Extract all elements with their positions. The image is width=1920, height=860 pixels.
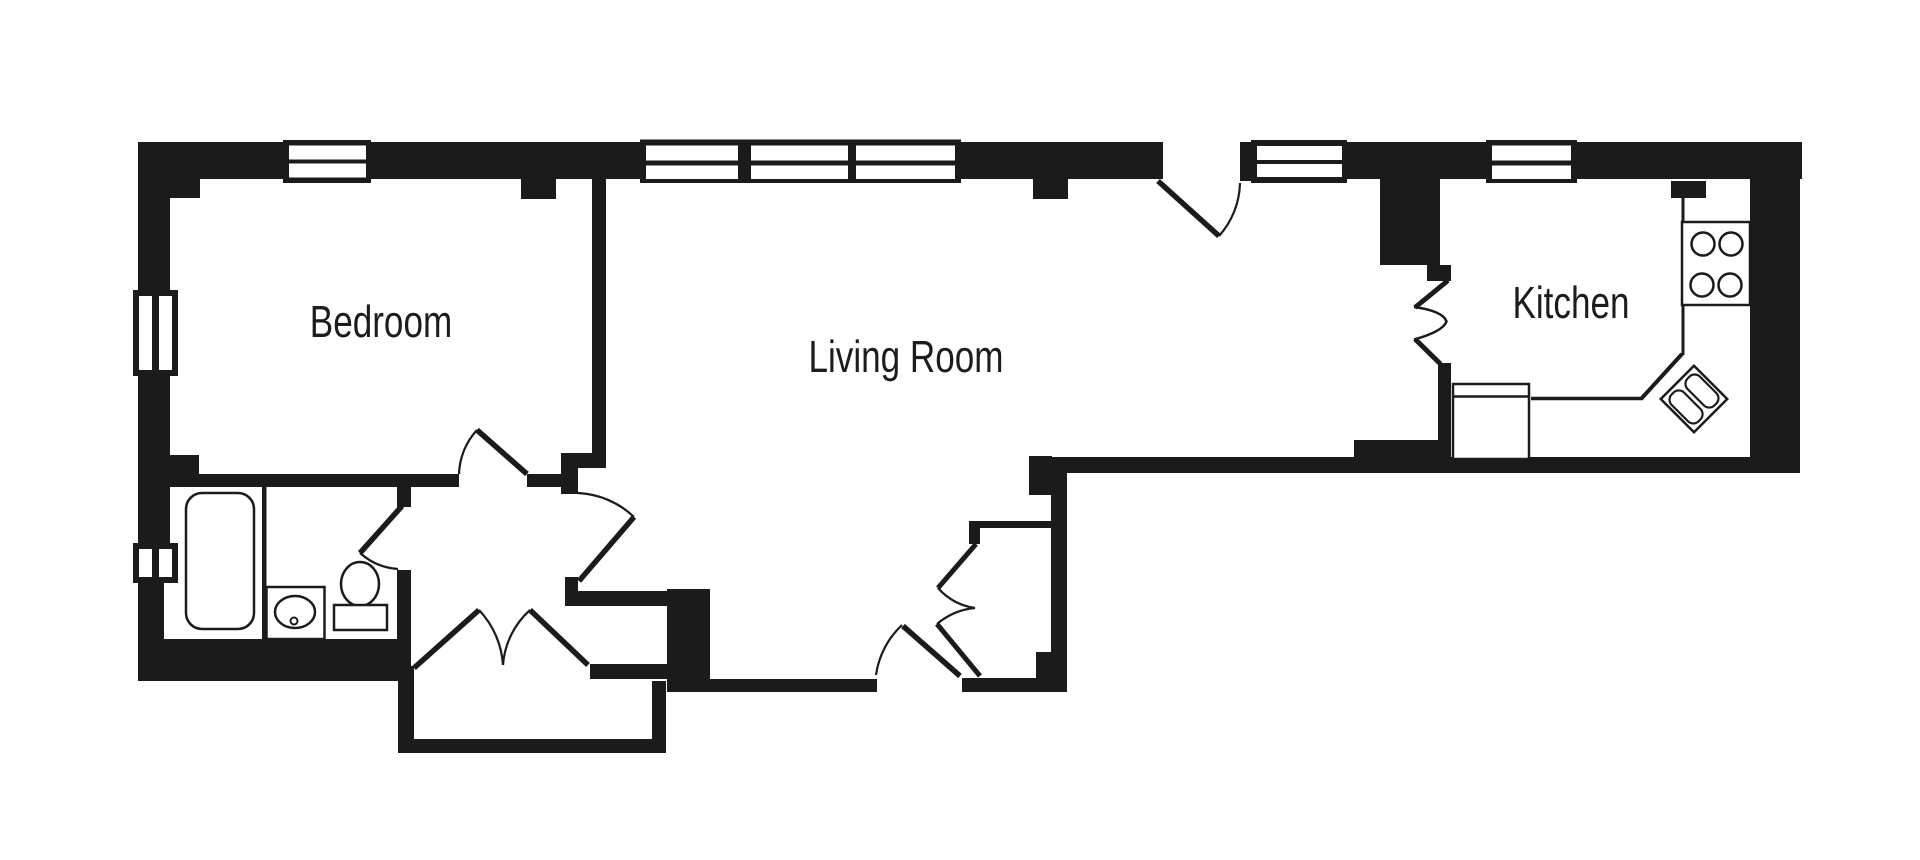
svg-text:Living Room: Living Room [808, 331, 1003, 382]
svg-text:Bedroom: Bedroom [310, 296, 452, 347]
svg-text:Kitchen: Kitchen [1512, 277, 1629, 328]
